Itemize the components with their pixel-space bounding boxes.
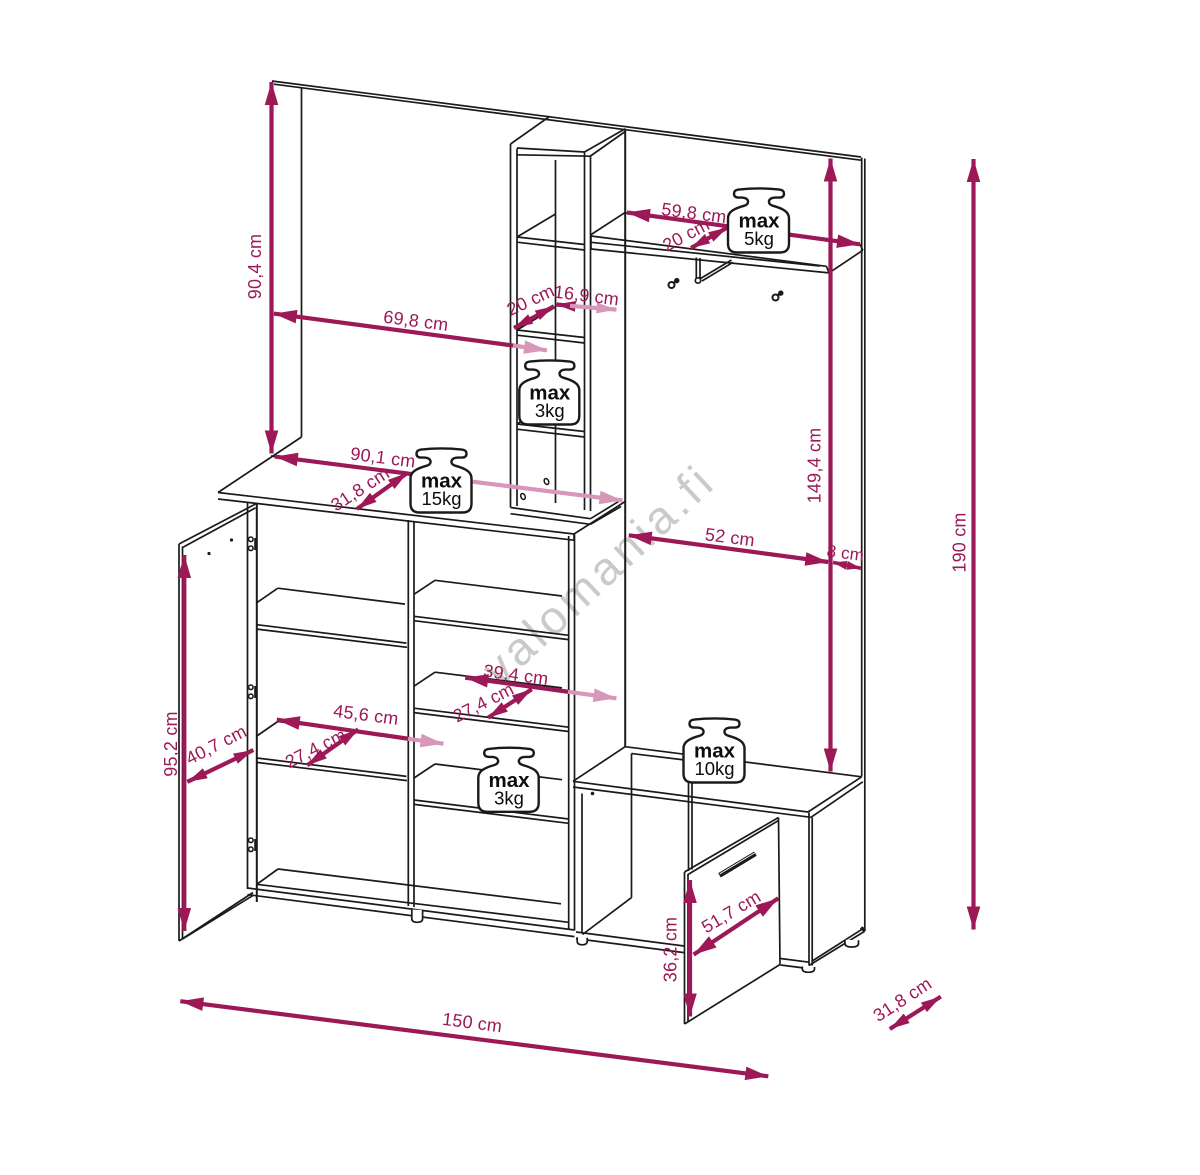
svg-text:95,2 cm: 95,2 cm [161, 711, 181, 776]
svg-text:149,4 cm: 149,4 cm [805, 428, 825, 504]
svg-text:3kg: 3kg [535, 400, 565, 421]
svg-text:36,2 cm: 36,2 cm [660, 917, 680, 982]
svg-text:15kg: 15kg [421, 488, 461, 509]
svg-text:90,4 cm: 90,4 cm [245, 234, 265, 299]
svg-text:3kg: 3kg [494, 787, 524, 808]
svg-text:190 cm: 190 cm [949, 512, 969, 572]
svg-text:10kg: 10kg [694, 758, 734, 779]
svg-text:5kg: 5kg [744, 228, 774, 249]
